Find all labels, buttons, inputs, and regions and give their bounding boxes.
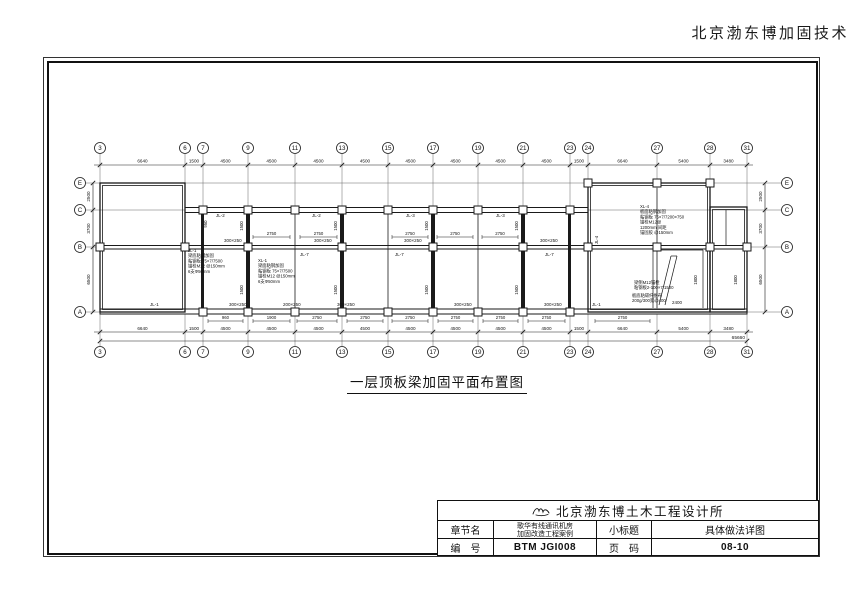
chapter-label: 章节名 <box>438 520 493 538</box>
svg-text:2400: 2400 <box>672 300 683 305</box>
svg-text:6500: 6500 <box>758 274 763 285</box>
svg-text:5400: 5400 <box>678 326 689 331</box>
svg-text:300×250: 300×250 <box>224 238 242 243</box>
svg-text:1500: 1500 <box>514 285 519 295</box>
svg-text:4500: 4500 <box>220 326 231 331</box>
svg-text:21: 21 <box>520 145 527 152</box>
annotations: JL-2JL-2JL-3JL-3JL-1JL-1JL-7JL-7JL-7300×… <box>150 204 738 307</box>
svg-text:1500: 1500 <box>333 221 338 231</box>
svg-text:1500: 1500 <box>574 326 585 331</box>
svg-text:2750: 2750 <box>314 231 324 236</box>
svg-text:2500: 2500 <box>758 191 763 202</box>
svg-text:13: 13 <box>339 349 346 356</box>
svg-text:27: 27 <box>654 349 661 356</box>
svg-text:4500: 4500 <box>313 326 324 331</box>
svg-text:6640: 6640 <box>617 326 628 331</box>
svg-text:1500: 1500 <box>333 285 338 295</box>
svg-text:C: C <box>78 207 83 214</box>
svg-text:960: 960 <box>222 315 230 320</box>
svg-text:4500: 4500 <box>405 326 416 331</box>
svg-text:3480: 3480 <box>723 159 734 164</box>
svg-text:JL-7: JL-7 <box>395 252 404 257</box>
svg-text:23: 23 <box>567 349 574 356</box>
svg-text:E: E <box>785 180 789 187</box>
svg-text:2750: 2750 <box>450 231 460 236</box>
svg-text:4500: 4500 <box>495 326 506 331</box>
svg-text:1500: 1500 <box>574 159 585 164</box>
svg-text:2750: 2750 <box>496 315 506 320</box>
svg-text:2750: 2750 <box>495 231 505 236</box>
svg-text:JL-2: JL-2 <box>312 213 321 218</box>
svg-text:21: 21 <box>520 349 527 356</box>
svg-text:JL-1: JL-1 <box>592 302 601 307</box>
svg-text:23: 23 <box>567 145 574 152</box>
svg-text:300×250: 300×250 <box>544 302 562 307</box>
svg-text:65660: 65660 <box>732 335 746 341</box>
subtitle-label: 小标题 <box>596 520 651 538</box>
svg-text:2750: 2750 <box>312 315 322 320</box>
subtitle-value: 具体做法详图 <box>651 520 818 538</box>
svg-text:300×250: 300×250 <box>454 302 472 307</box>
drawing-caption: 一层顶板梁加固平面布置图 <box>347 371 527 394</box>
svg-text:JL-1: JL-1 <box>150 302 159 307</box>
svg-text:锚固胶 @150mm: 锚固胶 @150mm <box>640 229 673 236</box>
svg-text:1500: 1500 <box>424 285 429 295</box>
svg-text:1500: 1500 <box>189 159 200 164</box>
svg-text:JL-3: JL-3 <box>406 213 415 218</box>
svg-text:2750: 2750 <box>360 315 370 320</box>
svg-text:1500: 1500 <box>239 285 244 295</box>
svg-text:6500: 6500 <box>86 274 91 285</box>
svg-text:1800: 1800 <box>693 275 698 285</box>
svg-text:9: 9 <box>246 349 250 356</box>
svg-text:31: 31 <box>744 349 751 356</box>
svg-text:4500: 4500 <box>360 159 371 164</box>
svg-text:5400: 5400 <box>678 159 689 164</box>
svg-text:粘钢板2-100×7/1500: 粘钢板2-100×7/1500 <box>634 284 674 291</box>
svg-text:7: 7 <box>201 349 205 356</box>
svg-text:11: 11 <box>292 145 299 152</box>
svg-text:6: 6 <box>183 145 187 152</box>
svg-text:2750: 2750 <box>451 315 461 320</box>
drawing-sheet: 北京渤东博加固技术 664015004500450045004500450045… <box>0 0 863 603</box>
svg-text:4500: 4500 <box>360 326 371 331</box>
svg-text:15: 15 <box>385 145 392 152</box>
title-block: 北京渤东博土木工程设计所 章节名 歌华有线通讯机房 加固改造工程案例 小标题 具… <box>437 500 819 556</box>
svg-text:15: 15 <box>385 349 392 356</box>
chapter-value-line1: 歌华有线通讯机房 <box>517 522 573 530</box>
svg-text:6640: 6640 <box>137 159 148 164</box>
svg-text:9: 9 <box>246 145 250 152</box>
svg-text:4500: 4500 <box>541 326 552 331</box>
svg-text:4500: 4500 <box>266 326 277 331</box>
svg-text:1500: 1500 <box>189 326 200 331</box>
svg-text:JL-7: JL-7 <box>300 252 309 257</box>
svg-text:2750: 2750 <box>405 315 415 320</box>
svg-text:6640: 6640 <box>137 326 148 331</box>
svg-text:1800: 1800 <box>733 275 738 285</box>
svg-text:B: B <box>785 244 789 251</box>
svg-text:28: 28 <box>707 349 714 356</box>
svg-text:300×250: 300×250 <box>314 238 332 243</box>
svg-text:1500: 1500 <box>239 221 244 231</box>
svg-text:200g/300宽@400: 200g/300宽@400 <box>632 297 666 304</box>
svg-text:300×250: 300×250 <box>229 302 247 307</box>
svg-text:950: 950 <box>203 220 208 228</box>
svg-text:24: 24 <box>585 145 592 152</box>
chapter-value-line2: 加固改造工程案例 <box>517 530 573 538</box>
svg-text:6支Φ50mm: 6支Φ50mm <box>188 268 210 275</box>
svg-text:4500: 4500 <box>495 159 506 164</box>
svg-text:2500: 2500 <box>86 191 91 202</box>
svg-text:2750: 2750 <box>542 315 552 320</box>
svg-text:300×250: 300×250 <box>404 238 422 243</box>
svg-text:4500: 4500 <box>450 159 461 164</box>
svg-text:19: 19 <box>475 145 482 152</box>
svg-text:4500: 4500 <box>313 159 324 164</box>
svg-text:28: 28 <box>707 145 714 152</box>
svg-text:2750: 2750 <box>405 231 415 236</box>
chapter-value: 歌华有线通讯机房 加固改造工程案例 <box>493 520 596 538</box>
svg-text:300×250: 300×250 <box>540 238 558 243</box>
svg-text:27: 27 <box>654 145 661 152</box>
svg-text:3700: 3700 <box>758 223 763 234</box>
svg-text:11: 11 <box>292 349 299 356</box>
svg-text:4500: 4500 <box>220 159 231 164</box>
number-value: BTM JGI008 <box>493 538 596 555</box>
svg-text:1900: 1900 <box>267 315 277 320</box>
svg-text:1500: 1500 <box>424 221 429 231</box>
number-label: 编 号 <box>438 538 493 555</box>
svg-text:3: 3 <box>98 145 102 152</box>
svg-text:3: 3 <box>98 349 102 356</box>
svg-text:JL-7: JL-7 <box>545 252 554 257</box>
svg-text:B: B <box>78 244 82 251</box>
svg-text:4500: 4500 <box>405 159 416 164</box>
svg-text:6: 6 <box>183 349 187 356</box>
svg-text:6640: 6640 <box>617 159 628 164</box>
svg-text:3700: 3700 <box>86 223 91 234</box>
title-block-firm-row: 北京渤东博土木工程设计所 <box>438 501 818 520</box>
svg-text:4500: 4500 <box>266 159 277 164</box>
svg-text:2750: 2750 <box>267 231 277 236</box>
svg-text:19: 19 <box>475 349 482 356</box>
svg-text:JL-2: JL-2 <box>216 213 225 218</box>
svg-text:17: 17 <box>430 349 437 356</box>
svg-text:24: 24 <box>585 349 592 356</box>
svg-text:2750: 2750 <box>618 315 628 320</box>
svg-text:17: 17 <box>430 145 437 152</box>
svg-text:E: E <box>78 180 82 187</box>
svg-text:JL-4: JL-4 <box>594 235 599 244</box>
svg-text:7: 7 <box>201 145 205 152</box>
page-value: 08-10 <box>651 538 818 555</box>
svg-text:4500: 4500 <box>541 159 552 164</box>
svg-text:300×250: 300×250 <box>337 302 355 307</box>
svg-text:3480: 3480 <box>723 326 734 331</box>
svg-text:JL-3: JL-3 <box>496 213 505 218</box>
svg-text:1500: 1500 <box>514 221 519 231</box>
page-label: 页 码 <box>596 538 651 555</box>
svg-text:200×250: 200×250 <box>283 302 301 307</box>
design-institute-logo-icon <box>532 505 550 517</box>
svg-text:13: 13 <box>339 145 346 152</box>
svg-text:31: 31 <box>744 145 751 152</box>
svg-text:4500: 4500 <box>450 326 461 331</box>
firm-name: 北京渤东博土木工程设计所 <box>556 501 724 520</box>
svg-text:C: C <box>785 207 790 214</box>
svg-text:6支Φ50mm: 6支Φ50mm <box>258 278 280 285</box>
